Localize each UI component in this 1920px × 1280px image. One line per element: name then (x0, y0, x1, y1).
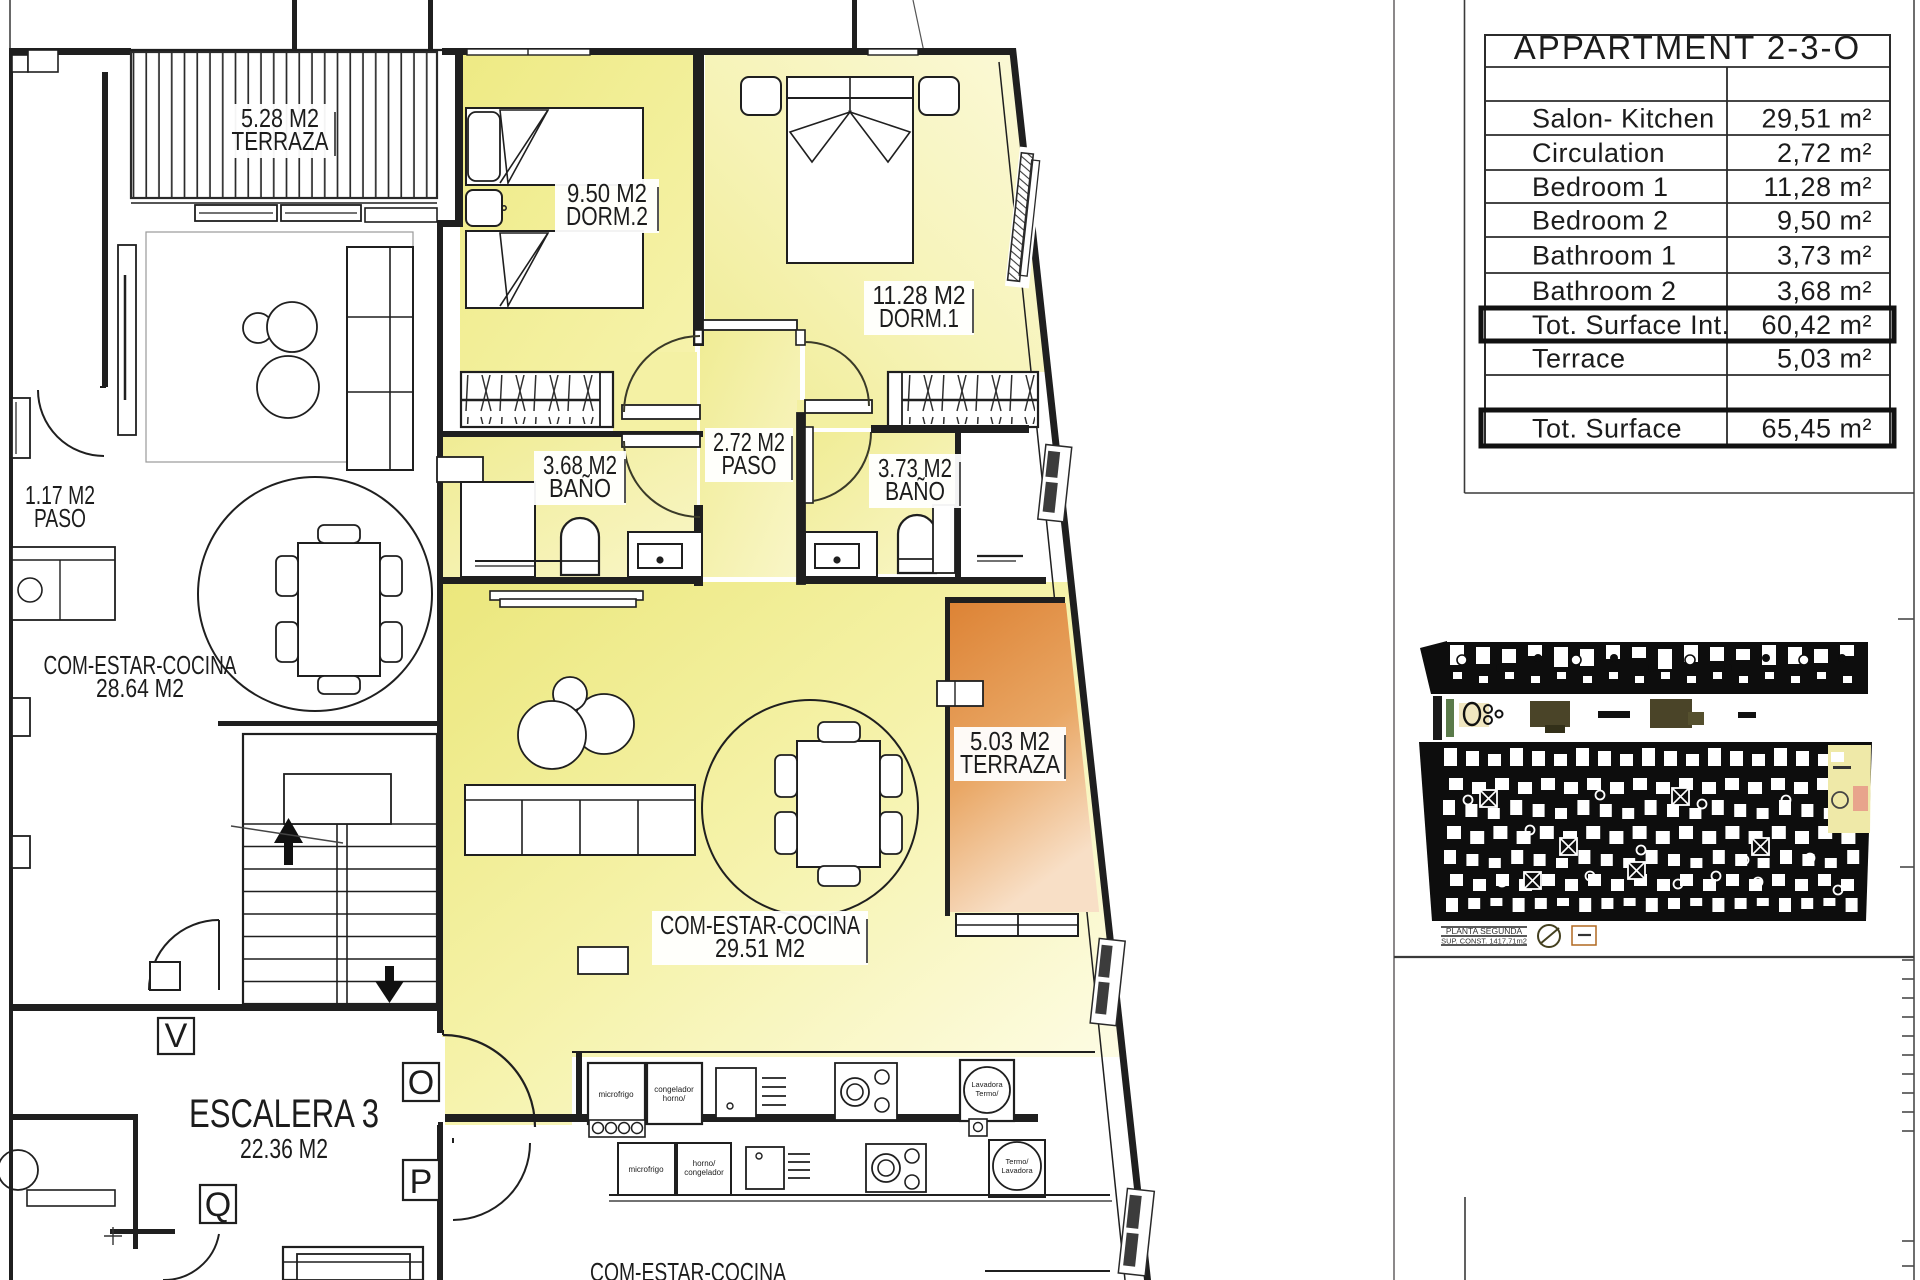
svg-text:Salon- Kitchen: Salon- Kitchen (1532, 104, 1715, 134)
svg-text:9,50 m²: 9,50 m² (1777, 206, 1872, 236)
svg-text:ESCALERA 3: ESCALERA 3 (189, 1092, 379, 1136)
svg-text:11,28 m²: 11,28 m² (1763, 172, 1872, 202)
svg-text:Bedroom 2: Bedroom 2 (1532, 206, 1669, 236)
svg-text:congelador: congelador (654, 1085, 694, 1094)
svg-text:PASO: PASO (34, 503, 86, 533)
svg-text:2,72 m²: 2,72 m² (1777, 138, 1872, 168)
svg-text:29.51 M2: 29.51 M2 (715, 933, 805, 963)
svg-text:22.36 M2: 22.36 M2 (240, 1133, 328, 1164)
svg-text:COM-ESTAR-COCINA: COM-ESTAR-COCINA (590, 1257, 786, 1280)
svg-text:TERRAZA: TERRAZA (232, 126, 330, 156)
svg-text:DORM.2: DORM.2 (566, 201, 648, 231)
svg-text:Terrace: Terrace (1532, 344, 1626, 374)
svg-text:Bathroom 2: Bathroom 2 (1532, 276, 1677, 306)
svg-text:PLANTA SEGUNDA: PLANTA SEGUNDA (1446, 926, 1523, 936)
svg-text:3,68 m²: 3,68 m² (1777, 276, 1872, 306)
svg-text:BAÑO: BAÑO (549, 473, 611, 503)
svg-text:microfrigo: microfrigo (628, 1165, 664, 1174)
svg-text:DORM.1: DORM.1 (879, 303, 959, 333)
svg-text:microfrigo: microfrigo (598, 1090, 634, 1099)
svg-text:Tot. Surface Int.: Tot. Surface Int. (1532, 310, 1730, 340)
svg-text:29,51 m²: 29,51 m² (1761, 104, 1872, 134)
svg-text:5,03 m²: 5,03 m² (1777, 344, 1872, 374)
svg-text:BAÑO: BAÑO (885, 476, 945, 506)
svg-text:Lavadora: Lavadora (1001, 1166, 1033, 1175)
svg-text:O: O (408, 1064, 434, 1102)
svg-text:Lavadora: Lavadora (971, 1080, 1003, 1089)
svg-text:congelador: congelador (684, 1168, 724, 1177)
svg-text:Bathroom 1: Bathroom 1 (1532, 241, 1677, 271)
svg-text:PASO: PASO (722, 450, 777, 480)
svg-text:APPARTMENT 2-3-O: APPARTMENT 2-3-O (1514, 29, 1861, 66)
svg-text:Circulation: Circulation (1532, 138, 1665, 168)
svg-text:TERRAZA: TERRAZA (960, 749, 1061, 779)
svg-text:Q: Q (205, 1186, 231, 1224)
svg-text:3,73 m²: 3,73 m² (1777, 241, 1872, 271)
svg-text:28.64 M2: 28.64 M2 (96, 673, 184, 703)
svg-text:Termo/: Termo/ (976, 1089, 1000, 1098)
svg-text:Tot. Surface: Tot. Surface (1532, 414, 1682, 444)
svg-text:Bedroom 1: Bedroom 1 (1532, 172, 1669, 202)
svg-text:60,42 m²: 60,42 m² (1761, 310, 1872, 340)
svg-text:horno/: horno/ (663, 1094, 686, 1103)
svg-text:P: P (410, 1163, 433, 1201)
svg-text:SUP. CONST. 1417,71m2: SUP. CONST. 1417,71m2 (1441, 937, 1527, 946)
svg-text:Termo/: Termo/ (1006, 1157, 1030, 1166)
svg-text:horno/: horno/ (693, 1159, 716, 1168)
svg-text:V: V (165, 1017, 188, 1055)
svg-text:65,45 m²: 65,45 m² (1761, 414, 1872, 444)
